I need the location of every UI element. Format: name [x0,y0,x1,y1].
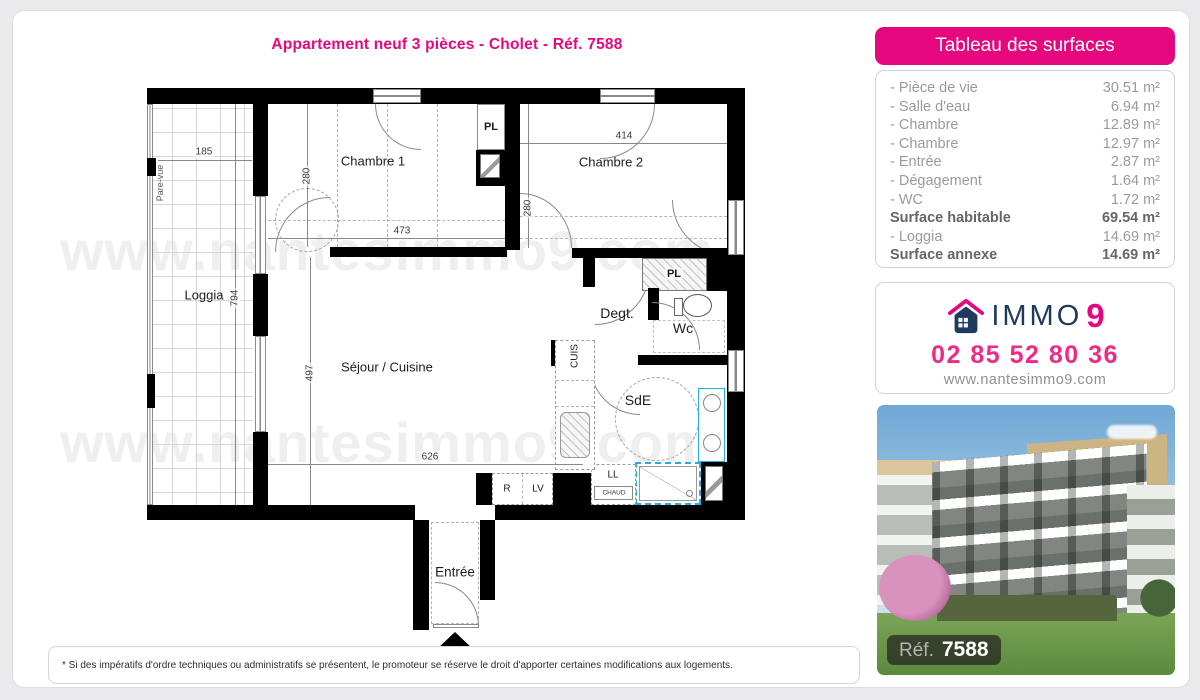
wall [147,374,155,408]
dimension-value: 280 [523,198,534,219]
surface-row-value: 1.64 m² [1111,172,1160,191]
surface-row: - Entrée 2.87 m² [890,153,1160,172]
brand-immo-text: IMMO [991,300,1082,333]
surface-row: Surface habitable 69.54 m² [890,209,1160,228]
surface-row-value: 14.69 m² [1102,246,1160,265]
surface-row: Surface annexe 14.69 m² [890,246,1160,265]
surface-row-value: 6.94 m² [1111,98,1160,117]
guide-line [520,238,727,239]
surface-row-value: 2.87 m² [1111,153,1160,172]
surface-table-header: Tableau des surfaces [875,27,1175,65]
dimension-value: 473 [392,226,413,237]
agency-panel: IMMO9 02 85 52 80 36 www.nantesimmo9.com [875,282,1175,394]
dimension-value: 626 [420,452,441,463]
surface-row-label: - Chambre [890,135,1103,154]
brand-9-text: 9 [1086,297,1104,335]
wall [572,248,727,258]
entree-label: Entrée [435,565,475,580]
surface-row-label: - Pièce de vie [890,79,1103,98]
dimension-line [268,238,505,239]
window [728,350,744,392]
wall [476,473,492,505]
surface-row-label: - Entrée [890,153,1111,172]
wall [495,505,745,520]
window [728,200,744,255]
disclaimer-text: * Si des impératifs d'ordre techniques o… [62,660,733,671]
lave-linge-label: LL [607,470,618,481]
window [373,89,421,103]
photo-pink-tree [879,555,951,621]
shaft-hatch [705,466,723,501]
wall [505,104,520,250]
wall [638,355,727,365]
surface-row-value: 1.72 m² [1111,191,1160,210]
cuisine-label: CUIS [570,344,581,368]
kitchen-sink [560,412,590,458]
wall [707,258,727,291]
wall [413,520,429,630]
surface-row-value: 69.54 m² [1102,209,1160,228]
agency-phone: 02 85 52 80 36 [876,341,1174,370]
agency-website: www.nantesimmo9.com [876,372,1174,388]
sliding-bay-window [255,336,266,432]
placard-top-label: PL [484,121,498,133]
guide-line [437,104,438,247]
page-title: Appartement neuf 3 pièces - Cholet - Réf… [147,36,747,54]
surface-table: - Pièce de vie 30.51 m² - Salle d'eau 6.… [875,70,1175,268]
immo9-house-icon [945,297,987,335]
wall [553,473,591,505]
surface-row-value: 12.89 m² [1103,116,1160,135]
chaudiere-label: CHAUD [602,490,625,497]
photo-green-tree [1139,575,1175,621]
surface-table-rows: - Pièce de vie 30.51 m² - Salle d'eau 6.… [890,79,1160,265]
washbasin [703,394,721,412]
surface-row: - Salle d'eau 6.94 m² [890,98,1160,117]
floor-plan: Pare-vue PL PL Wc Degt. SdE LL CHA [147,88,747,650]
dimension-line [528,104,529,248]
entrance-door-leaf [433,624,479,628]
surface-table-title: Tableau des surfaces [935,35,1115,57]
wall [147,505,415,520]
dimension-value: 497 [305,363,316,384]
counter-divider [556,380,594,381]
surface-row-label: - Salle d'eau [890,98,1111,117]
turning-circle [615,377,699,461]
surface-row-label: - Chambre [890,116,1103,135]
surface-row-label: - WC [890,191,1111,210]
wall [253,104,268,196]
photo-hedge [937,595,1117,621]
wall [147,88,745,104]
wall [727,88,745,520]
toilet-bowl [683,294,712,317]
wall [253,274,268,336]
sejour-label: Séjour / Cuisine [341,360,433,375]
dimension-value: 280 [302,166,313,187]
disclaimer-box: * Si des impératifs d'ordre techniques o… [48,646,860,684]
chambre1-label: Chambre 1 [341,154,405,169]
dimension-line [520,143,727,144]
window [255,196,266,274]
shower-tray [635,462,701,505]
wall [330,247,507,257]
dimension-value: 794 [230,288,241,309]
surface-row-label: Surface annexe [890,246,1102,265]
toilet-tank [674,298,683,316]
window [600,89,655,103]
guide-line [387,104,388,247]
counter-divider [556,406,594,407]
salle-eau-label: SdE [625,392,651,408]
surface-row-value: 12.97 m² [1103,135,1160,154]
wall [480,520,495,600]
ref-badge: Réf. 7588 [887,635,1001,665]
window-swing-arc [375,104,421,150]
surface-row-label: - Dégagement [890,172,1111,191]
surface-row-value: 30.51 m² [1103,79,1160,98]
ref-label: Réf. [899,640,934,662]
lave-vaisselle-label: LV [532,484,544,495]
guide-line [520,216,727,217]
washbasin [703,434,721,452]
photo-cloud [1107,425,1157,439]
wc-label: Wc [673,320,693,336]
surface-row-label: Surface habitable [890,209,1102,228]
dimension-line [158,160,252,161]
placard-right-label: PL [665,268,683,280]
building-photo: Réf. 7588 [877,405,1175,675]
dimension-line [268,464,583,465]
surface-row: - Chambre 12.97 m² [890,135,1160,154]
agency-logo: IMMO9 [876,297,1174,335]
degagement-label: Degt. [600,305,633,321]
surface-row-value: 14.69 m² [1103,228,1160,247]
ref-value: 7588 [942,638,989,662]
door-swing-arc [672,200,727,255]
chambre2-label: Chambre 2 [579,155,643,170]
shaft-hatch [480,154,500,178]
refrigerateur-label: R [503,484,510,495]
wall [583,257,595,287]
shower-drain [686,490,693,497]
wall [253,432,268,505]
surface-row: - Pièce de vie 30.51 m² [890,79,1160,98]
surface-row: - WC 1.72 m² [890,191,1160,210]
surface-row: - Loggia 14.69 m² [890,228,1160,247]
loggia-label: Loggia [184,288,223,303]
surface-row-label: - Loggia [890,228,1103,247]
cabinet-divider [522,474,523,504]
flyer-page: { "page": { "title": "Appartement neuf 3… [0,0,1200,700]
surface-row: - Dégagement 1.64 m² [890,172,1160,191]
surface-row: - Chambre 12.89 m² [890,116,1160,135]
pare-vue-label: Pare-vue [155,165,165,202]
dimension-value: 185 [194,147,215,158]
dimension-value: 414 [614,131,635,142]
